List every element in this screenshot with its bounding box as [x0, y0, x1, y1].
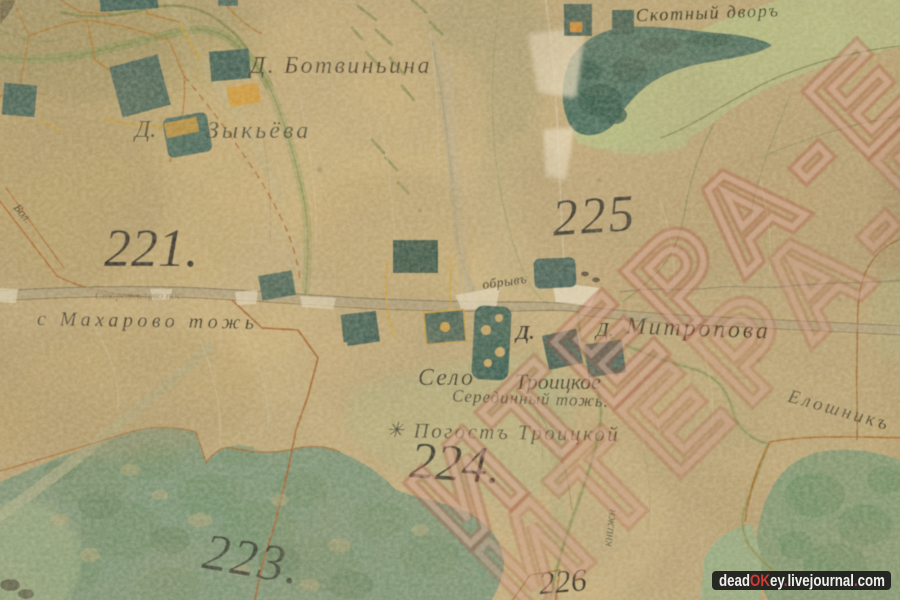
svg-text:deadOKey.livejournal.com: deadOKey.livejournal.com [719, 572, 885, 590]
